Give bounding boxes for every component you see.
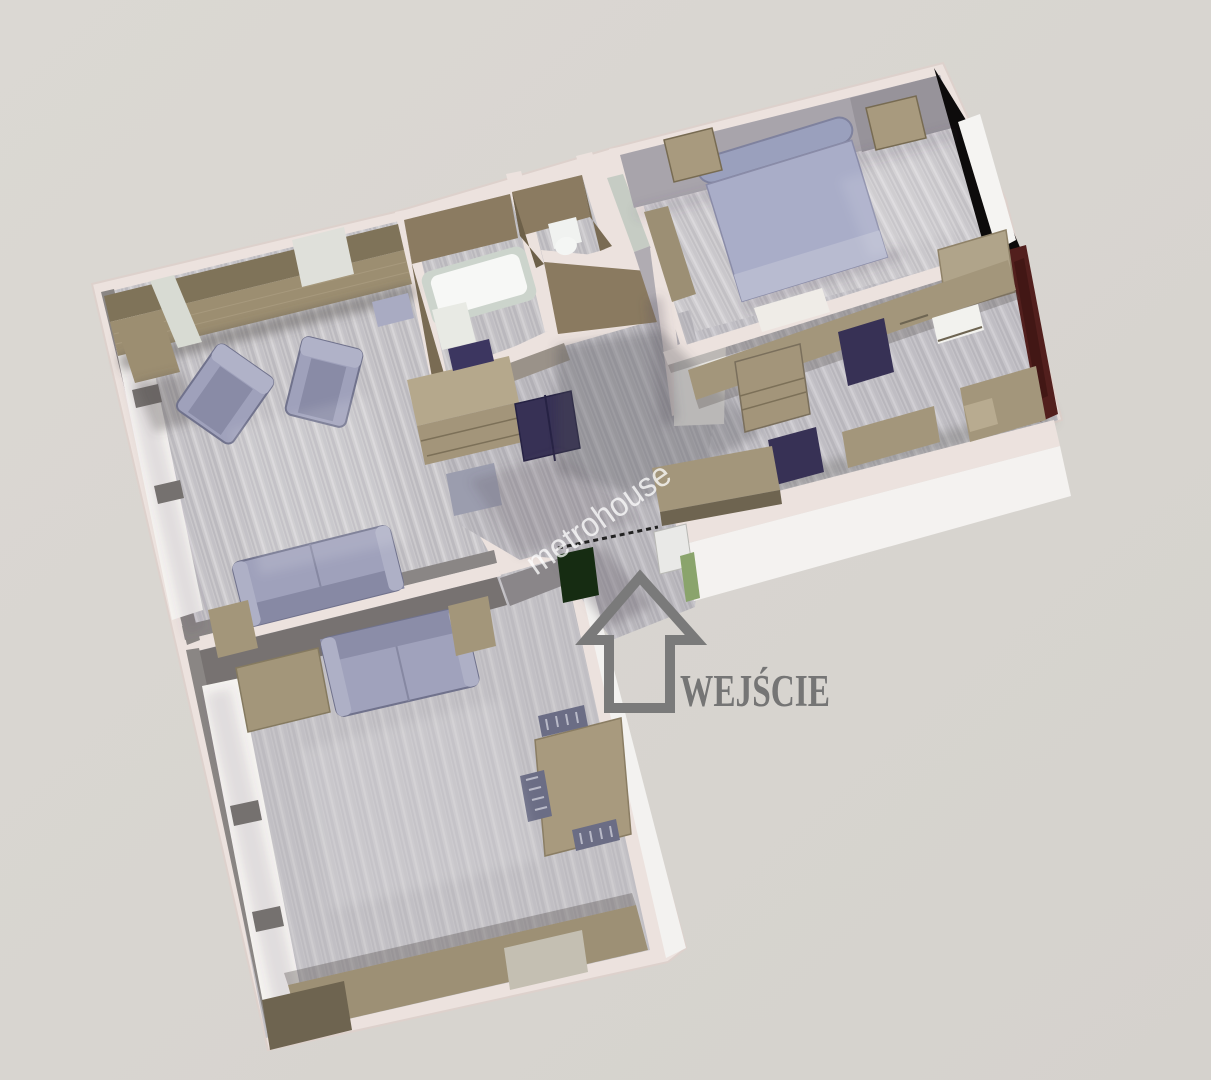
svg-text:WEJŚCIE: WEJŚCIE	[680, 666, 830, 716]
